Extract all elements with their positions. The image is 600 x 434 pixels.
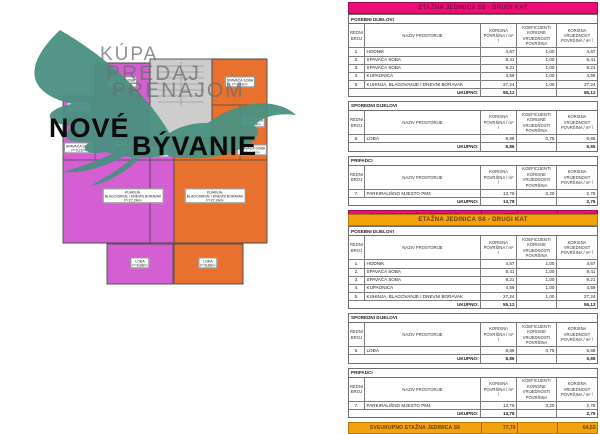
column-header: KORISNA VRIJEDNOST POVRŠINA / m² / — [557, 323, 597, 346]
ukupno-label: UKUPNO: — [349, 409, 481, 417]
column-header: KORISNA VRIJEDNOST POVRŠINA / m² / — [557, 378, 597, 401]
section-grid: REDNI BROJNAZIV PROSTORIJEKORISNA POVRŠI… — [349, 323, 597, 363]
table-cell: 4,59 — [481, 284, 517, 292]
column-header: KOEFICIJENTI KORISNE VRIJEDNOSTI POVRŠIN… — [517, 166, 557, 189]
column-header: REDNI BROJ — [349, 323, 365, 346]
grand-total-vrijednost: 64,53 — [557, 423, 597, 433]
table-cell: SPAVAĆA SOBA — [365, 56, 481, 64]
column-header: KOEFICIJENTI KORISNE VRIJEDNOSTI POVRŠIN… — [517, 24, 557, 47]
ukupno-empty — [517, 197, 557, 205]
table-cell: 6,65 — [557, 346, 597, 354]
table-cell: 1,00 — [517, 292, 557, 300]
table-cell: 4,59 — [481, 72, 517, 80]
table-section: PRIPADCIREDNI BROJNAZIV PROSTORIJEKORISN… — [348, 156, 598, 207]
table-section: POSEBNI DIJELOVIREDNI BROJNAZIV PROSTORI… — [348, 14, 598, 97]
table-cell: 0,75 — [517, 346, 557, 354]
ukupno-korisna: 13,78 — [481, 409, 517, 417]
table-cell: 2,76 — [557, 401, 597, 409]
table-cell: 27,24 — [557, 292, 597, 300]
column-header: KORISNA POVRŠINA / m² / — [481, 24, 517, 47]
section-label: POSEBNI DIJELOVI — [349, 15, 597, 24]
ukupno-vrijednost: 6,65 — [557, 142, 597, 150]
table-cell: 9,41 — [481, 268, 517, 276]
table-cell: 9,21 — [481, 276, 517, 284]
table-cell: SPAVAĆA SOBA — [365, 268, 481, 276]
room-label-s6-living: KUHINJA, BLAGOVANJE I DNEVNI BORAVAK P=2… — [185, 188, 246, 203]
table-cell: 27,24 — [481, 292, 517, 300]
table-cell: 1. — [349, 47, 365, 55]
table-cell: 9,41 — [557, 268, 597, 276]
room-label-s5-loggia: LOĐA P=8,86m² — [130, 257, 149, 268]
column-header: KORISNA VRIJEDNOST POVRŠINA / m² / — [557, 236, 597, 259]
table-cell: 0,20 — [517, 401, 557, 409]
table-cell: 1,00 — [517, 276, 557, 284]
table-section: POSEBNI DIJELOVIREDNI BROJNAZIV PROSTORI… — [348, 226, 598, 309]
table-cell: KUHINJA, BLAGOVANJE I DNEVNI BORAVAK — [365, 80, 481, 88]
column-header: KOEFICIJENTI KORISNE VRIJEDNOSTI POVRŠIN… — [517, 323, 557, 346]
column-header: REDNI BROJ — [349, 378, 365, 401]
ukupno-label: UKUPNO: — [349, 197, 481, 205]
column-header: NAZIV PROSTORIJE — [365, 378, 481, 401]
table-cell: 8,86 — [481, 134, 517, 142]
unit-table-title: ETAŽNA JEDINICA S6 - DRUGI KAT — [348, 214, 598, 226]
table-cell: 4,67 — [557, 47, 597, 55]
logo-text-prenajom: PRENÁJOM — [112, 79, 245, 103]
table-section: SPOREDNI DIJELOVIREDNI BROJNAZIV PROSTOR… — [348, 101, 598, 152]
section-grid: REDNI BROJNAZIV PROSTORIJEKORISNA POVRŠI… — [349, 378, 597, 418]
table-cell: 13,78 — [481, 401, 517, 409]
table-cell: 4,59 — [557, 284, 597, 292]
ukupno-vrijednost: 55,12 — [557, 88, 597, 96]
table-cell: 1. — [349, 259, 365, 267]
table-cell: 4,67 — [481, 259, 517, 267]
table-cell: 1,00 — [517, 259, 557, 267]
room-label-s6-loggia: LOĐA P=8,86m² — [198, 257, 217, 268]
ukupno-vrijednost: 2,76 — [557, 409, 597, 417]
ukupno-empty — [517, 88, 557, 96]
table-cell: 7. — [349, 189, 365, 197]
room-area: P=8,86m² — [132, 263, 147, 267]
section-grid: REDNI BROJNAZIV PROSTORIJEKORISNA POVRŠI… — [349, 24, 597, 96]
table-cell: 5. — [349, 292, 365, 300]
table-cell: 4. — [349, 72, 365, 80]
table-cell: 9,21 — [557, 64, 597, 72]
table-cell: 6. — [349, 346, 365, 354]
column-header: KORISNA POVRŠINA / m² / — [481, 236, 517, 259]
table-cell: 1,00 — [517, 72, 557, 80]
table-cell: 0,75 — [517, 134, 557, 142]
ukupno-empty — [517, 409, 557, 417]
section-label: SPOREDNI DIJELOVI — [349, 314, 597, 323]
ukupno-label: UKUPNO: — [349, 142, 481, 150]
ukupno-vrijednost: 55,12 — [557, 300, 597, 308]
table-cell: 9,41 — [557, 56, 597, 64]
table-cell: KUHINJA, BLAGOVANJE I DNEVNI BORAVAK — [365, 292, 481, 300]
ukupno-empty — [517, 354, 557, 362]
column-header: REDNI BROJ — [349, 166, 365, 189]
table-cell: 2,76 — [557, 189, 597, 197]
column-header: KOEFICIJENTI KORISNE VRIJEDNOSTI POVRŠIN… — [517, 111, 557, 134]
table-cell: SPAVAĆA SOBA — [365, 64, 481, 72]
column-header: KORISNA POVRŠINA / m² / — [481, 323, 517, 346]
room-area: P=8,86m² — [200, 263, 215, 267]
table-cell: 27,24 — [557, 80, 597, 88]
ukupno-empty — [517, 300, 557, 308]
section-label: PRIPADCI — [349, 369, 597, 378]
table-cell: 8,86 — [481, 346, 517, 354]
table-cell: SPAVAĆA SOBA — [365, 276, 481, 284]
ukupno-korisna: 8,86 — [481, 142, 517, 150]
table-cell: 3. — [349, 64, 365, 72]
column-header: KOEFICIJENTI KORISNE VRIJEDNOSTI POVRŠIN… — [517, 378, 557, 401]
table-cell: 13,78 — [481, 189, 517, 197]
column-header: KORISNA VRIJEDNOST POVRŠINA / m² / — [557, 111, 597, 134]
table-cell: KUPAONICA — [365, 72, 481, 80]
unit-table-s6: ETAŽNA JEDINICA S6 - DRUGI KATPOSEBNI DI… — [348, 214, 598, 434]
table-cell: 4,67 — [481, 47, 517, 55]
table-cell: 6,65 — [557, 134, 597, 142]
ukupno-korisna: 8,86 — [481, 354, 517, 362]
table-cell: PARKIRALIŠNO MJESTO PM4 — [365, 401, 481, 409]
section-label: POSEBNI DIJELOVI — [349, 227, 597, 236]
column-header: KORISNA POVRŠINA / m² / — [481, 166, 517, 189]
table-cell: 1,00 — [517, 268, 557, 276]
table-cell: 1,00 — [517, 47, 557, 55]
ukupno-korisna: 55,12 — [481, 300, 517, 308]
column-header: KORISNA POVRŠINA / m² / — [481, 111, 517, 134]
table-cell: 1,00 — [517, 284, 557, 292]
section-grid: REDNI BROJNAZIV PROSTORIJEKORISNA POVRŠI… — [349, 236, 597, 308]
column-header: NAZIV PROSTORIJE — [365, 111, 481, 134]
grand-total-label: SVEUKUPNO ETAŽNA JEDINICA S6 — [349, 423, 481, 433]
room-label-s5-living: KUHINJA, BLAGOVANJE I DNEVNI BORAVAK P=2… — [103, 188, 164, 203]
table-cell: HODNIK — [365, 259, 481, 267]
ukupno-vrijednost: 2,76 — [557, 197, 597, 205]
grand-total-korisna: 77,76 — [481, 423, 517, 433]
column-header: REDNI BROJ — [349, 236, 365, 259]
room-area: P=27,24m² — [187, 198, 244, 202]
column-header: NAZIV PROSTORIJE — [365, 24, 481, 47]
table-cell: KUPAONICA — [365, 284, 481, 292]
table-cell: 5. — [349, 80, 365, 88]
section-grid: REDNI BROJNAZIV PROSTORIJEKORISNA POVRŠI… — [349, 111, 597, 151]
ukupno-korisna: 55,12 — [481, 88, 517, 96]
table-cell: 9,21 — [557, 276, 597, 284]
ukupno-vrijednost: 6,65 — [557, 354, 597, 362]
column-header: NAZIV PROSTORIJE — [365, 166, 481, 189]
column-header: REDNI BROJ — [349, 111, 365, 134]
table-cell: 1,00 — [517, 56, 557, 64]
table-cell: 3. — [349, 276, 365, 284]
ukupno-label: UKUPNO: — [349, 300, 481, 308]
ukupno-label: UKUPNO: — [349, 88, 481, 96]
unit-table-s5: ETAŽNA JEDINICA S5 - DRUGI KATPOSEBNI DI… — [348, 2, 598, 222]
ukupno-empty — [517, 142, 557, 150]
column-header: NAZIV PROSTORIJE — [365, 236, 481, 259]
section-label: SPOREDNI DIJELOVI — [349, 102, 597, 111]
column-header: KORISNA VRIJEDNOST POVRŠINA / m² / — [557, 166, 597, 189]
column-header: NAZIV PROSTORIJE — [365, 323, 481, 346]
ukupno-korisna: 13,78 — [481, 197, 517, 205]
grand-total-row: SVEUKUPNO ETAŽNA JEDINICA S677,7664,53 — [348, 422, 598, 434]
table-cell: 4,59 — [557, 72, 597, 80]
table-cell: 4. — [349, 284, 365, 292]
column-header: KOEFICIJENTI KORISNE VRIJEDNOSTI POVRŠIN… — [517, 236, 557, 259]
table-cell: 1,00 — [517, 80, 557, 88]
column-header: KORISNA POVRŠINA / m² / — [481, 378, 517, 401]
table-cell: 1,00 — [517, 64, 557, 72]
room-area: P=27,24m² — [105, 198, 162, 202]
table-cell: 6. — [349, 134, 365, 142]
logo-brand-nove: NOVÉ — [49, 113, 130, 144]
table-cell: 2. — [349, 268, 365, 276]
table-cell: 4,67 — [557, 259, 597, 267]
unit-table-title: ETAŽNA JEDINICA S5 - DRUGI KAT — [348, 2, 598, 14]
grand-total-empty — [517, 423, 557, 433]
table-cell: 0,20 — [517, 189, 557, 197]
section-grid: REDNI BROJNAZIV PROSTORIJEKORISNA POVRŠI… — [349, 166, 597, 206]
table-cell: 7. — [349, 401, 365, 409]
table-cell: LOĐA — [365, 346, 481, 354]
table-cell: 9,41 — [481, 56, 517, 64]
table-cell: 2. — [349, 56, 365, 64]
logo-brand-byvanie: BÝVANIE — [132, 131, 257, 162]
section-label: PRIPADCI — [349, 157, 597, 166]
table-cell: 27,24 — [481, 80, 517, 88]
column-header: REDNI BROJ — [349, 24, 365, 47]
table-section: PRIPADCIREDNI BROJNAZIV PROSTORIJEKORISN… — [348, 368, 598, 419]
table-cell: PARKIRALIŠNO MJESTO PM3 — [365, 189, 481, 197]
table-section: SPOREDNI DIJELOVIREDNI BROJNAZIV PROSTOR… — [348, 313, 598, 364]
ukupno-label: UKUPNO: — [349, 354, 481, 362]
table-cell: HODNIK — [365, 47, 481, 55]
table-cell: LOĐA — [365, 134, 481, 142]
table-cell: 9,21 — [481, 64, 517, 72]
column-header: KORISNA VRIJEDNOST POVRŠINA / m² / — [557, 24, 597, 47]
